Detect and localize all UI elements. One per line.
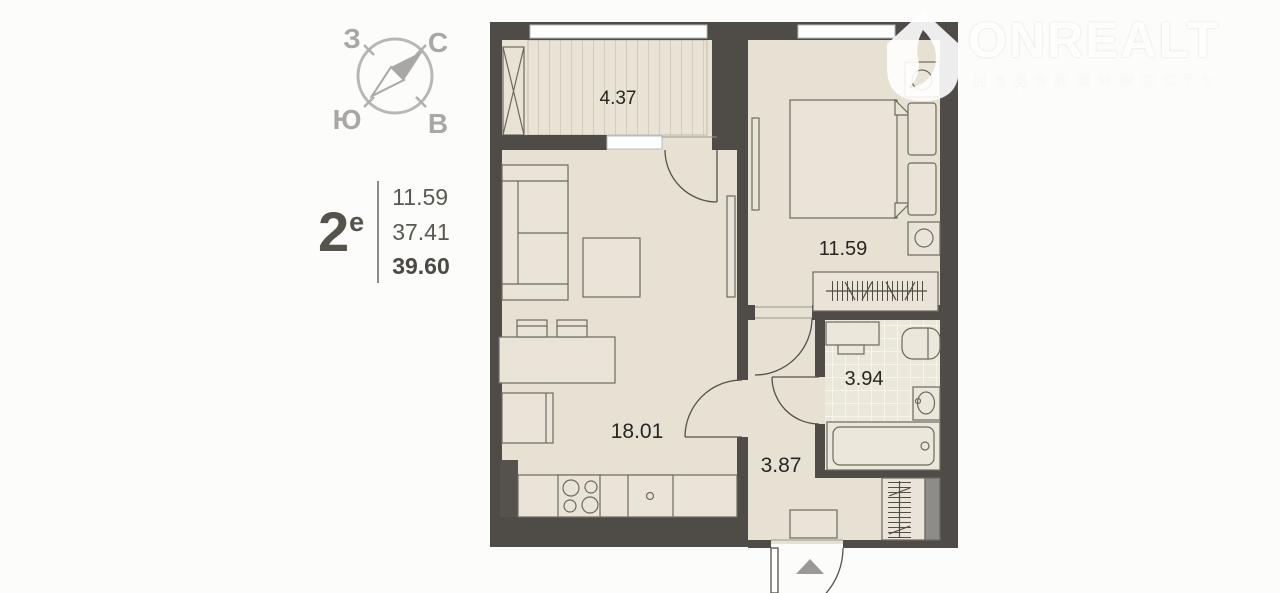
- chair: [557, 320, 587, 337]
- brand-name: ONREALT: [968, 8, 1223, 73]
- apartment-rooms-count: 2: [318, 205, 349, 258]
- apartment-type: 2 е: [318, 205, 364, 258]
- bedroom-area-label: 11.59: [819, 238, 868, 260]
- apartment-summary: 2 е 11.59 37.41 39.60: [318, 180, 450, 284]
- apartment-areas: 11.59 37.41 39.60: [392, 180, 450, 284]
- tv-console-bedroom: [752, 118, 759, 210]
- stove: [558, 475, 600, 517]
- entry-arrow: [796, 559, 824, 574]
- pillow: [908, 163, 936, 215]
- coffee-table: [583, 238, 640, 297]
- floorplan-page: З С Ю В 2 е 11.59 37.41 39.60: [0, 0, 1280, 593]
- hall-shaft: [925, 478, 940, 540]
- pillow: [908, 103, 936, 155]
- divider-line: [377, 181, 379, 283]
- apartment-area-value: 37.41: [392, 215, 450, 250]
- compass-rose: З С Ю В: [328, 14, 460, 142]
- compass-west-label: З: [343, 23, 361, 54]
- ac-unit-box: [503, 47, 524, 135]
- balcony-area-label: 4.37: [600, 88, 637, 109]
- floorplan-drawing: 4.37 11.59 18.01 3.94 3.87: [480, 0, 970, 593]
- hallway-area-label: 3.87: [761, 454, 802, 477]
- living-area-label: 18.01: [611, 420, 664, 443]
- living-balcony-window: [607, 136, 662, 149]
- bathroom-area-label: 3.94: [845, 368, 884, 390]
- balcony-window: [530, 25, 707, 38]
- chair: [517, 320, 547, 337]
- ventilation-shaft: [500, 460, 518, 517]
- kitchen-sink: [628, 475, 673, 517]
- total-area-value: 39.60: [392, 249, 450, 284]
- brand-tagline: НЕДВИЖИМОСТЬ: [974, 73, 1223, 91]
- wardrobe: [813, 272, 938, 311]
- bed: [790, 100, 897, 218]
- entry-mat: [790, 510, 837, 538]
- compass-north-label: С: [428, 27, 448, 58]
- apartment-type-suffix: е: [349, 207, 364, 238]
- coat-closet: [882, 478, 925, 540]
- nightstand: [905, 62, 940, 97]
- nightstand: [908, 222, 940, 255]
- compass-east-label: В: [428, 108, 448, 139]
- tv-console-living: [727, 196, 735, 297]
- sofa: [502, 165, 568, 300]
- bathtub: [827, 422, 940, 470]
- bedroom-window: [798, 25, 895, 38]
- compass-south-label: Ю: [333, 104, 362, 135]
- toilet: [902, 328, 940, 359]
- bathroom-sink: [913, 387, 940, 420]
- living-area-value: 11.59: [392, 180, 450, 215]
- cabinet: [502, 393, 553, 443]
- dining-table: [499, 337, 615, 383]
